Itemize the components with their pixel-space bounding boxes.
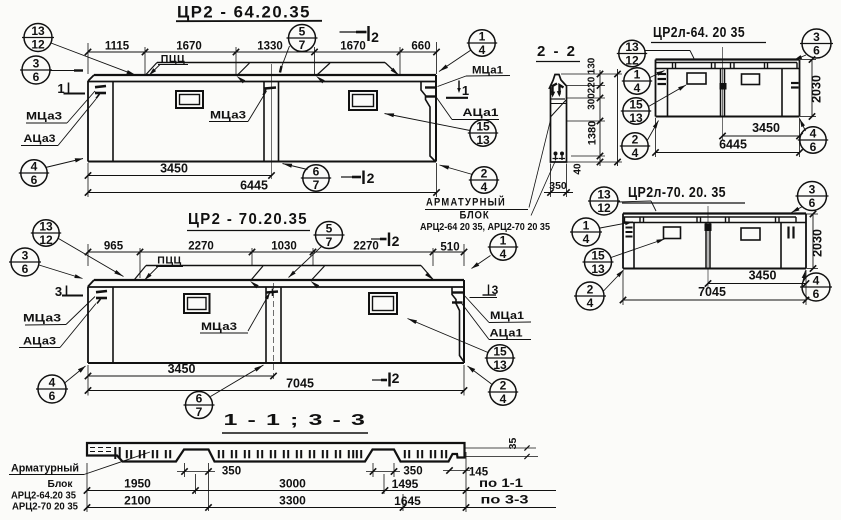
svg-text:15: 15 xyxy=(591,249,605,263)
svg-text:1: 1 xyxy=(634,68,641,82)
svg-text:6445: 6445 xyxy=(240,179,268,193)
svg-text:12: 12 xyxy=(625,54,639,68)
svg-text:1115: 1115 xyxy=(105,41,130,53)
svg-text:15: 15 xyxy=(493,345,507,359)
svg-text:12: 12 xyxy=(597,201,611,215)
svg-text:7: 7 xyxy=(299,38,306,52)
svg-text:1030: 1030 xyxy=(271,241,297,253)
svg-text:2: 2 xyxy=(367,170,375,186)
svg-text:6445: 6445 xyxy=(719,138,747,152)
svg-text:6: 6 xyxy=(313,165,320,179)
svg-text:1645: 1645 xyxy=(394,494,421,508)
svg-text:7: 7 xyxy=(196,405,203,419)
svg-text:3: 3 xyxy=(813,30,820,44)
svg-text:3000: 3000 xyxy=(279,477,306,491)
svg-text:3450: 3450 xyxy=(752,121,780,135)
svg-text:АЦа3: АЦа3 xyxy=(23,336,56,348)
svg-text:1 - 1 ; 3 - 3: 1 - 1 ; 3 - 3 xyxy=(224,412,367,429)
svg-text:35: 35 xyxy=(507,438,519,450)
svg-text:АРЦ2-64.20 35: АРЦ2-64.20 35 xyxy=(11,491,76,502)
svg-text:350: 350 xyxy=(549,180,567,192)
svg-text:6: 6 xyxy=(813,44,820,58)
svg-text:12: 12 xyxy=(31,38,45,52)
svg-text:6: 6 xyxy=(22,262,29,276)
svg-text:7: 7 xyxy=(313,178,320,192)
svg-text:2: 2 xyxy=(632,133,639,147)
svg-text:220: 220 xyxy=(587,76,598,93)
svg-text:2: 2 xyxy=(481,167,488,181)
svg-text:МЦа3: МЦа3 xyxy=(26,111,62,123)
svg-text:4: 4 xyxy=(634,81,641,95)
svg-text:АЦа1: АЦа1 xyxy=(463,107,499,119)
svg-text:1: 1 xyxy=(479,30,486,44)
svg-text:6: 6 xyxy=(49,389,56,403)
svg-text:Блок: Блок xyxy=(48,478,74,490)
svg-text:2030: 2030 xyxy=(810,75,824,103)
svg-text:1: 1 xyxy=(462,83,469,98)
svg-text:1: 1 xyxy=(583,219,590,233)
svg-text:7045: 7045 xyxy=(286,377,314,391)
svg-text:2: 2 xyxy=(392,370,400,386)
svg-text:1330: 1330 xyxy=(257,41,283,53)
svg-text:АРЦ2-64 20 35, АРЦ2-70 20 35: АРЦ2-64 20 35, АРЦ2-70 20 35 xyxy=(420,222,550,233)
svg-text:3450: 3450 xyxy=(749,269,777,283)
svg-text:Арматурный: Арматурный xyxy=(11,463,79,475)
svg-text:6: 6 xyxy=(810,140,817,154)
svg-text:6: 6 xyxy=(33,70,40,84)
svg-text:13: 13 xyxy=(39,220,53,234)
svg-text:АРЦ2-70 20 35: АРЦ2-70 20 35 xyxy=(12,502,78,513)
svg-text:2: 2 xyxy=(587,283,594,297)
svg-text:350: 350 xyxy=(403,466,422,478)
svg-text:13: 13 xyxy=(476,133,490,147)
svg-text:3: 3 xyxy=(492,283,499,297)
svg-text:1495: 1495 xyxy=(392,477,419,491)
svg-text:12: 12 xyxy=(39,233,53,247)
svg-text:АЦа1: АЦа1 xyxy=(490,328,523,340)
svg-text:510: 510 xyxy=(440,242,459,254)
svg-text:2 - 2: 2 - 2 xyxy=(537,43,577,60)
svg-text:13: 13 xyxy=(597,188,611,202)
svg-text:1670: 1670 xyxy=(176,41,202,53)
svg-text:2: 2 xyxy=(371,29,379,45)
svg-text:2100: 2100 xyxy=(124,494,151,508)
svg-text:ПЦЦ: ПЦЦ xyxy=(161,53,185,65)
svg-text:3300: 3300 xyxy=(279,494,306,508)
svg-text:13: 13 xyxy=(625,40,639,54)
svg-text:ПЦЦ: ПЦЦ xyxy=(157,255,181,267)
svg-text:350: 350 xyxy=(222,466,241,478)
svg-text:4: 4 xyxy=(479,43,486,57)
svg-text:15: 15 xyxy=(629,98,643,112)
svg-text:БЛОК: БЛОК xyxy=(460,210,490,222)
svg-text:4: 4 xyxy=(31,160,38,174)
svg-text:5: 5 xyxy=(326,222,333,236)
svg-text:7045: 7045 xyxy=(698,285,726,299)
svg-text:3450: 3450 xyxy=(160,162,188,176)
svg-text:1380: 1380 xyxy=(587,121,599,145)
svg-text:2270: 2270 xyxy=(188,241,214,253)
svg-text:660: 660 xyxy=(411,41,430,53)
svg-text:13: 13 xyxy=(493,358,507,372)
svg-text:2: 2 xyxy=(500,379,507,393)
svg-text:МЦа3: МЦа3 xyxy=(210,110,246,122)
svg-text:4: 4 xyxy=(587,296,594,310)
svg-text:15: 15 xyxy=(476,120,490,134)
svg-text:7: 7 xyxy=(326,235,333,249)
svg-text:3: 3 xyxy=(33,57,40,71)
svg-text:4: 4 xyxy=(813,274,820,288)
svg-text:ЦР2л-70. 20. 35: ЦР2л-70. 20. 35 xyxy=(628,185,726,201)
svg-text:13: 13 xyxy=(591,262,605,276)
svg-text:4: 4 xyxy=(500,247,507,261)
svg-text:5: 5 xyxy=(299,25,306,39)
svg-text:3: 3 xyxy=(22,249,29,263)
svg-text:по 1-1: по 1-1 xyxy=(479,476,523,490)
svg-text:3: 3 xyxy=(809,183,816,197)
svg-text:130: 130 xyxy=(587,57,598,74)
svg-text:МЦа1: МЦа1 xyxy=(472,65,503,77)
svg-text:6: 6 xyxy=(809,196,816,210)
svg-text:АЦа3: АЦа3 xyxy=(24,133,56,145)
svg-text:ЦР2 - 70.20.35: ЦР2 - 70.20.35 xyxy=(188,211,308,228)
svg-text:2030: 2030 xyxy=(811,229,825,257)
svg-text:4: 4 xyxy=(583,232,590,246)
svg-text:4: 4 xyxy=(481,180,488,194)
svg-text:4: 4 xyxy=(500,392,507,406)
svg-text:ЦР2л-64. 20 35: ЦР2л-64. 20 35 xyxy=(653,25,745,41)
svg-text:МЦа3: МЦа3 xyxy=(23,313,61,325)
svg-text:МЦа3: МЦа3 xyxy=(201,321,237,333)
svg-text:4: 4 xyxy=(49,376,56,390)
svg-text:300: 300 xyxy=(587,93,598,110)
svg-text:6: 6 xyxy=(813,287,820,301)
svg-text:3: 3 xyxy=(55,284,62,299)
svg-text:6: 6 xyxy=(196,392,203,406)
svg-text:2270: 2270 xyxy=(353,241,379,253)
svg-text:3450: 3450 xyxy=(168,362,196,376)
svg-text:6: 6 xyxy=(31,173,38,187)
svg-text:4: 4 xyxy=(810,127,817,141)
svg-text:40: 40 xyxy=(573,163,584,175)
svg-text:АРМАТУРНЫЙ: АРМАТУРНЫЙ xyxy=(426,196,506,209)
svg-text:1: 1 xyxy=(500,234,507,248)
svg-text:4: 4 xyxy=(632,146,639,160)
svg-text:13: 13 xyxy=(629,111,643,125)
svg-text:965: 965 xyxy=(104,241,124,253)
svg-text:ЦР2 - 64.20.35: ЦР2 - 64.20.35 xyxy=(177,4,311,22)
svg-text:МЦа1: МЦа1 xyxy=(490,310,524,322)
svg-text:по 3-3: по 3-3 xyxy=(481,493,529,507)
svg-text:13: 13 xyxy=(31,24,45,38)
svg-text:1670: 1670 xyxy=(340,41,366,53)
svg-text:1950: 1950 xyxy=(124,477,151,491)
svg-text:2: 2 xyxy=(392,233,400,249)
